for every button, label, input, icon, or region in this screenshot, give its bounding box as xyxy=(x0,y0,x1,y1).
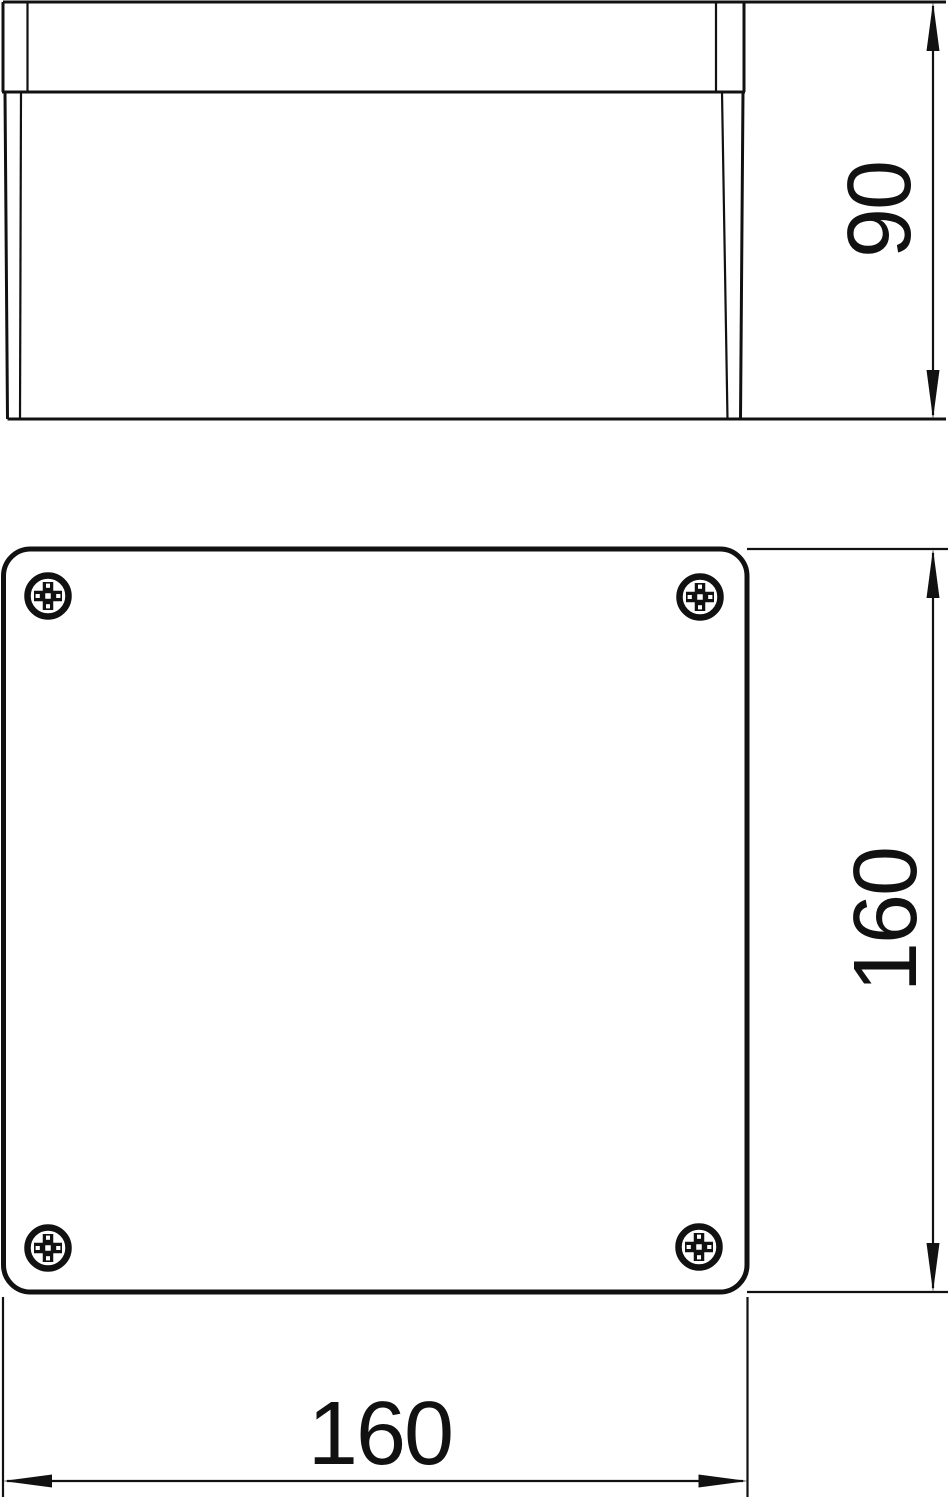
body-corner-tangent-left xyxy=(20,92,21,419)
width-dimension-label: 160 xyxy=(308,1384,452,1484)
dimension-arrowhead-icon xyxy=(3,1475,52,1488)
side-elevation-view xyxy=(2,2,946,419)
body-right-edge xyxy=(741,92,744,419)
dimension-arrowhead-icon xyxy=(927,2,940,51)
dimension-arrowhead-icon xyxy=(927,1243,940,1292)
phillips-screw-icon xyxy=(679,1227,720,1268)
dimension-arrowhead-icon xyxy=(927,549,940,598)
dimension-arrowhead-icon xyxy=(699,1475,748,1488)
phillips-screw-icon xyxy=(28,1228,69,1269)
phillips-screw-icon xyxy=(680,577,721,618)
width-dimension: 160 xyxy=(3,1297,748,1497)
phillips-screw-icon xyxy=(28,576,69,617)
plan-view xyxy=(4,549,748,1292)
body-corner-tangent-right xyxy=(722,92,728,419)
dimension-arrowhead-icon xyxy=(927,370,940,419)
body-left-edge xyxy=(5,92,8,419)
lid-plan-outline xyxy=(4,549,748,1292)
height-dimension-label: 90 xyxy=(830,162,930,258)
technical-drawing: 90 160 160 xyxy=(0,0,952,1500)
drawing-canvas: 90 160 160 xyxy=(0,0,952,1500)
depth-dimension: 160 xyxy=(747,549,948,1292)
height-dimension: 90 xyxy=(830,2,940,419)
depth-dimension-label: 160 xyxy=(836,848,936,992)
